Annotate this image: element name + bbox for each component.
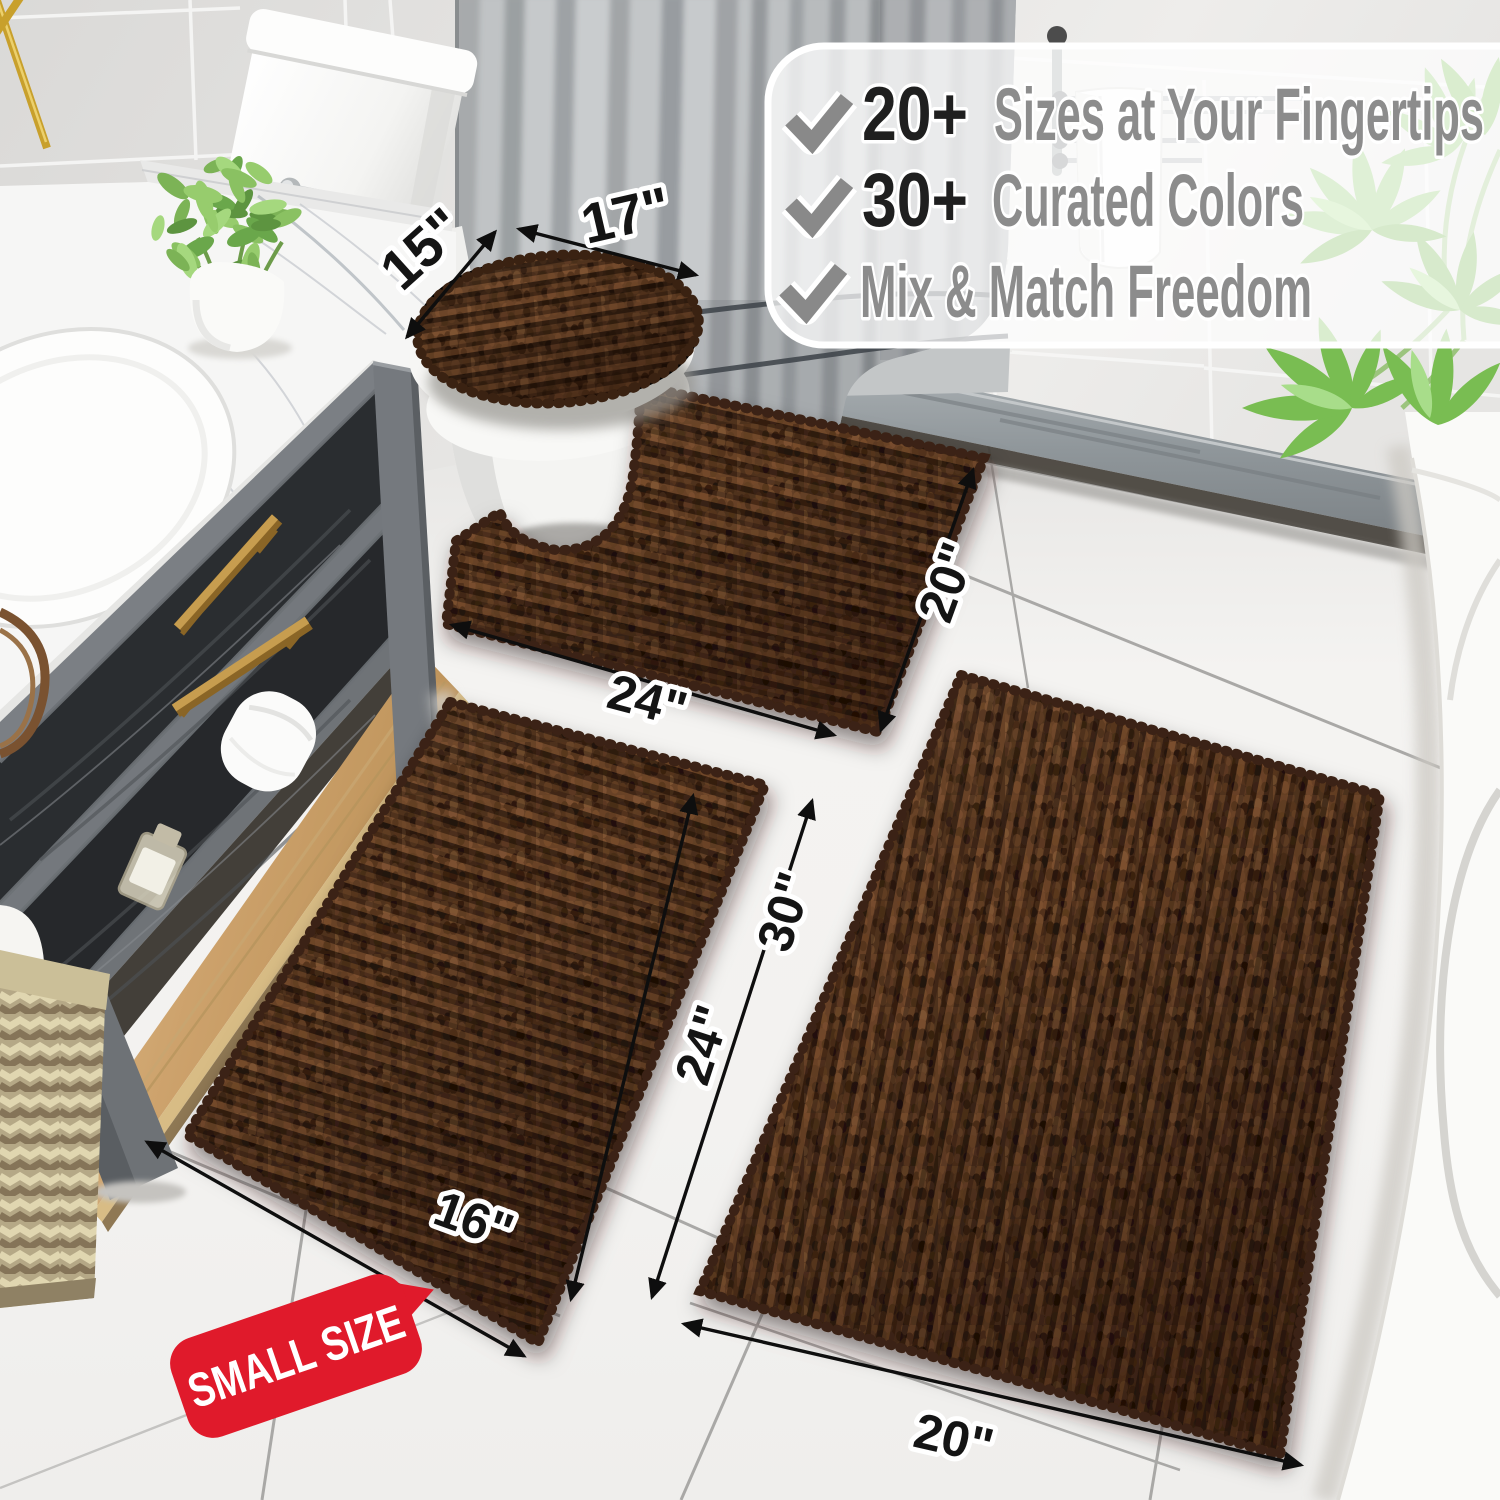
svg-text:20+: 20+ xyxy=(862,72,968,157)
svg-text:Sizes at Your Fingertips: Sizes at Your Fingertips xyxy=(994,73,1484,156)
svg-text:Curated Colors: Curated Colors xyxy=(992,159,1304,242)
svg-text:Mix & Match Freedom: Mix & Match Freedom xyxy=(860,250,1312,333)
svg-text:30+: 30+ xyxy=(862,158,968,243)
